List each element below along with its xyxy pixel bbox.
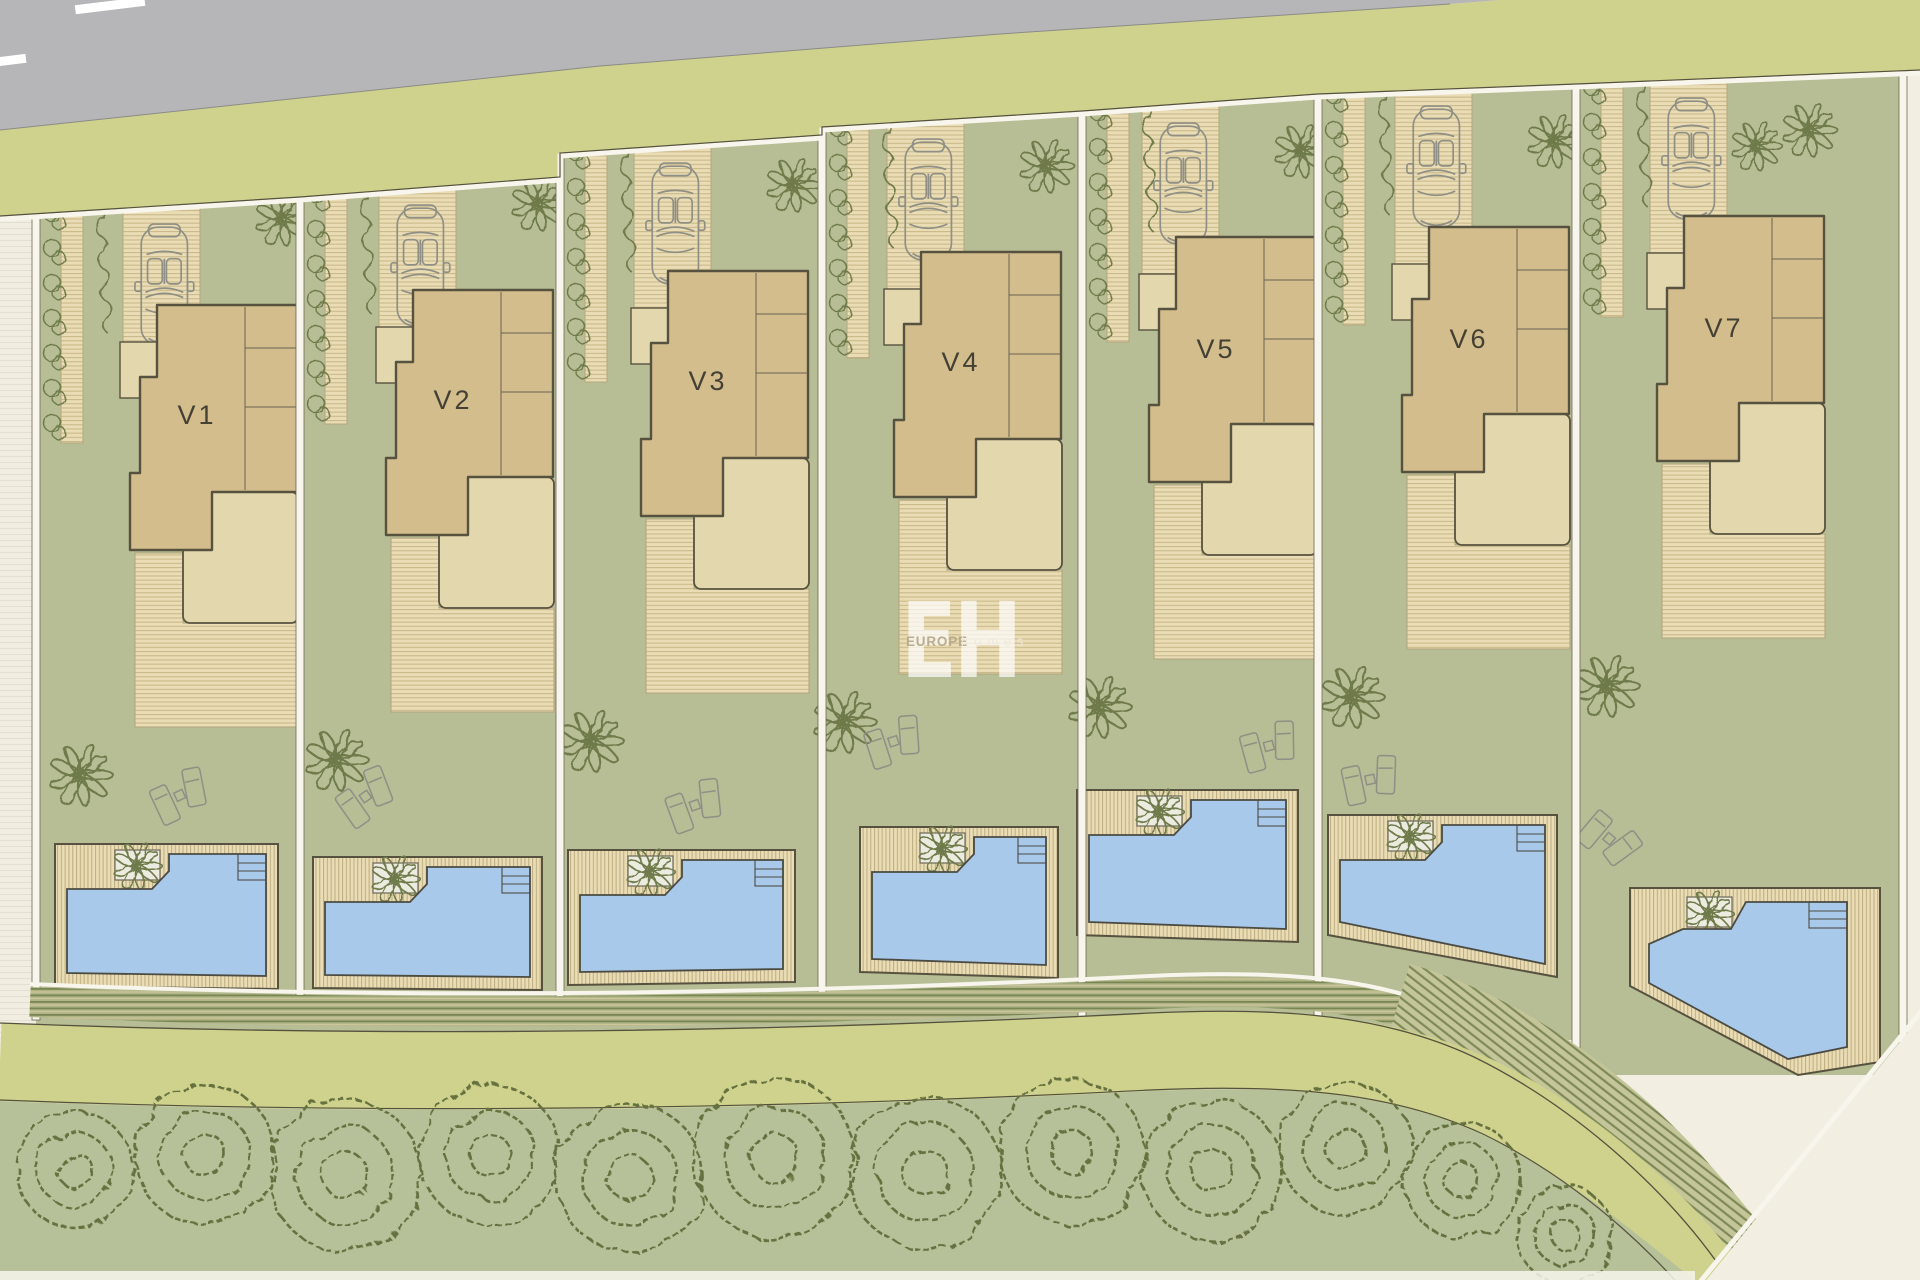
plots-layer [36,59,1903,1075]
plot-boundary-strip [1078,96,1086,1020]
watermark-suffix: homes [961,634,1029,649]
plot-boundary-strip [1572,71,1580,1090]
plot-boundary-strip [32,197,40,1020]
villa-plot-4 [812,100,1082,1040]
villa-label-v2: V2 [433,385,472,415]
plot-boundary-strip [296,178,304,1020]
villa-plot-7 [1575,59,1903,1075]
watermark-brand: EUROPE [906,634,968,649]
villa-plot-5 [1067,84,1330,1040]
villa-plot-3 [559,124,822,1040]
villa-label-v1: V1 [177,400,216,430]
villa-label-v5: V5 [1196,334,1235,364]
plot-boundary-strip [818,112,826,1020]
watermark: EH EUROPE homes [901,580,1029,702]
villa-plot-2 [300,166,567,1040]
plot-boundary-strip [1899,71,1907,1085]
villa-plot-6 [1318,67,1583,1040]
villa-label-v6: V6 [1449,324,1488,354]
plot-boundary-strip [1314,79,1322,1020]
villa-label-v3: V3 [688,366,727,396]
villa-label-v7: V7 [1704,313,1743,343]
site-plan-canvas: V1 V2 V3 V4 V5 V6 V7 EH EUROPE homes [0,0,1920,1280]
bottom-margin-strip [0,1271,1695,1280]
plot-boundary-strip [556,136,564,1020]
site-plan: V1 V2 V3 V4 V5 V6 V7 EH EUROPE homes [0,0,1920,1280]
villa-plot-1 [36,185,311,1040]
villa-label-v4: V4 [941,347,980,377]
